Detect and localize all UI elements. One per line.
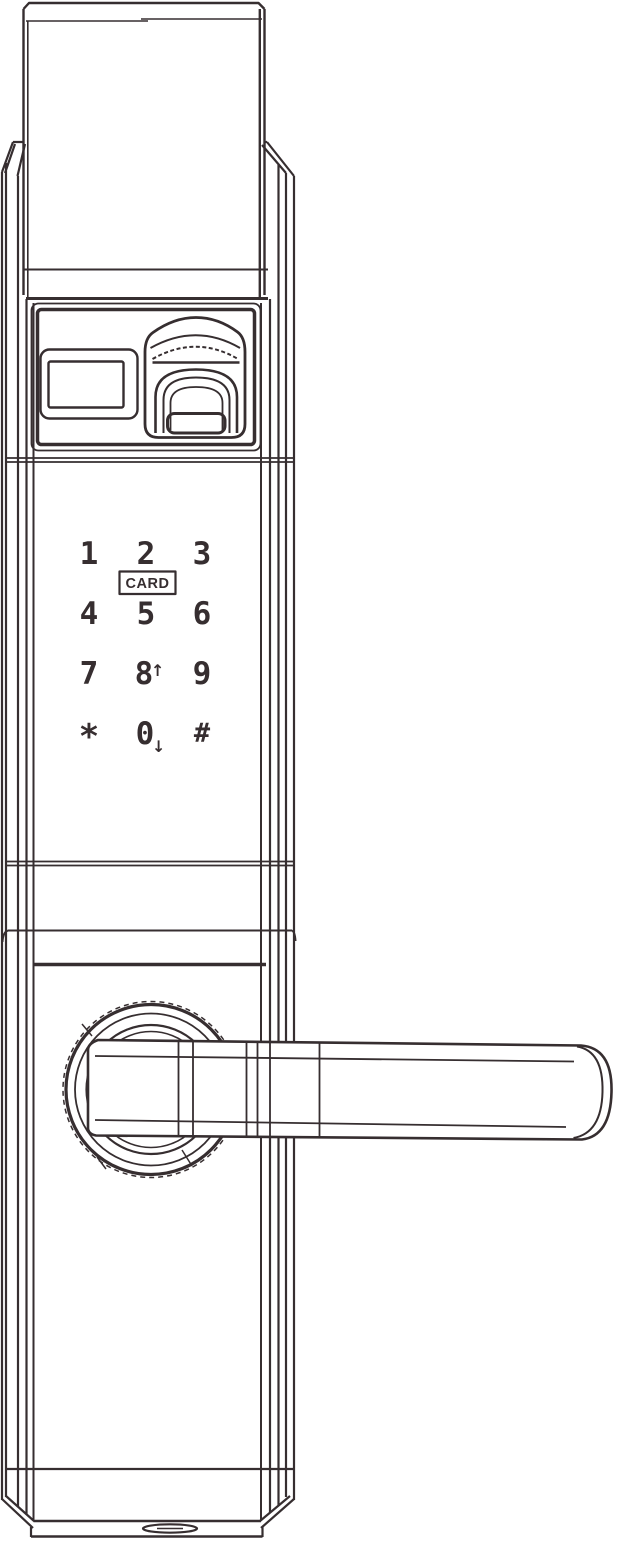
front-panel <box>32 304 261 451</box>
top-cap-inner-lines <box>26 19 262 297</box>
key-7: 7 <box>80 656 99 692</box>
keypad: 1 2 3 CARD 4 5 6 7 8 ↑ 9 * 0 ↓ # <box>79 536 212 757</box>
status-display-window <box>41 350 138 419</box>
lock-body <box>2 142 296 1521</box>
key-8-up-arrow-icon: ↑ <box>151 661 164 680</box>
card-reader-label: CARD <box>120 572 176 595</box>
key-0-down-arrow-icon: ↓ <box>152 737 165 756</box>
front-face-edges <box>34 303 262 1521</box>
fingerprint-top-arc <box>151 335 241 348</box>
fingerprint-textured-arc <box>153 347 239 359</box>
door-lock-technical-drawing: 1 2 3 CARD 4 5 6 7 8 ↑ 9 * 0 ↓ # <box>0 0 617 1541</box>
body-left-edges <box>2 142 27 1515</box>
bottom-section <box>2 1496 294 1537</box>
fingerprint-arch-inner <box>171 387 223 430</box>
emergency-port-oval <box>143 1524 197 1532</box>
fingerprint-window <box>168 414 226 434</box>
fingerprint-scanner <box>145 318 245 438</box>
key-star: * <box>79 717 99 757</box>
key-4: 4 <box>80 596 99 632</box>
key-3: 3 <box>193 536 212 572</box>
top-cap <box>24 3 269 299</box>
key-5: 5 <box>137 596 156 632</box>
fingerprint-arch-mid <box>164 378 230 434</box>
body-seam-mid <box>3 931 296 943</box>
display-glass <box>49 362 124 408</box>
line-drawing-canvas: 1 2 3 CARD 4 5 6 7 8 ↑ 9 * 0 ↓ # <box>0 0 617 1541</box>
key-2: 2 <box>137 536 156 572</box>
door-handle-lever <box>88 1040 612 1140</box>
key-hash: # <box>194 718 211 749</box>
card-label-text: CARD <box>126 576 170 592</box>
body-right-edges <box>262 142 294 1513</box>
top-cap-outline <box>24 3 265 297</box>
key-6: 6 <box>193 596 212 632</box>
key-1: 1 <box>80 536 99 572</box>
key-9: 9 <box>193 656 212 692</box>
